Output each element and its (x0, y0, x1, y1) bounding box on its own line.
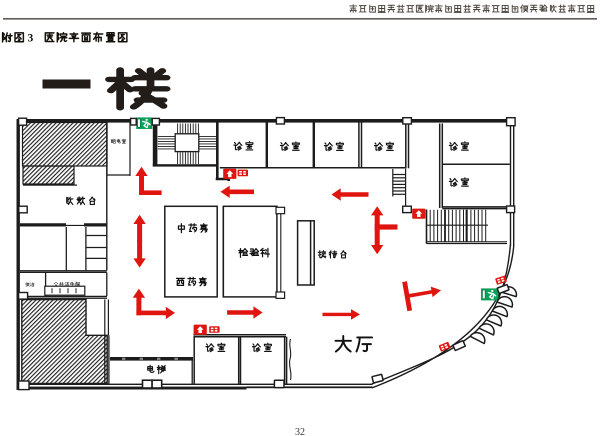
svg-text:3: 3 (28, 33, 34, 45)
svg-text:32: 32 (295, 427, 305, 436)
